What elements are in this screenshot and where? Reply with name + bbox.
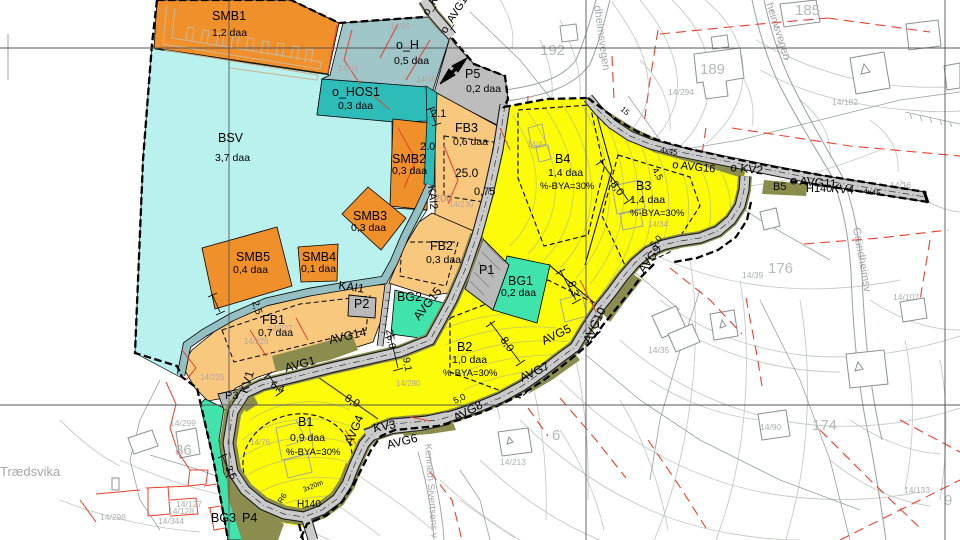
svg-text:P2: P2 [354,297,369,311]
svg-text:BSV: BSV [218,131,244,145]
svg-text:Trædsvika: Trædsvika [0,464,61,479]
svg-text:o_H: o_H [396,38,419,52]
svg-text:185: 185 [795,2,820,19]
svg-text:KV4: KV4 [831,181,855,197]
svg-text:14/34: 14/34 [648,220,669,229]
svg-text:SMB4: SMB4 [302,250,336,264]
svg-text:FB3: FB3 [455,121,478,135]
svg-text:14/90: 14/90 [760,422,782,432]
svg-text:176: 176 [768,260,793,277]
svg-text:B1: B1 [298,415,313,429]
svg-text:B5: B5 [773,181,786,193]
svg-text:14/213: 14/213 [500,457,526,467]
svg-text:14/298: 14/298 [100,512,126,522]
svg-text:14/182: 14/182 [832,97,858,107]
svg-text:P4: P4 [242,511,257,525]
svg-text:174: 174 [812,417,837,434]
svg-text:0,7 daa: 0,7 daa [258,327,293,339]
svg-text:14/39: 14/39 [742,270,764,280]
svg-text:%-BYA=30%: %-BYA=30% [630,208,685,219]
svg-text:4x45: 4x45 [863,187,882,198]
svg-text:H140: H140 [297,499,321,510]
svg-text:B4: B4 [555,152,570,166]
svg-text:2.1: 2.1 [431,108,446,120]
svg-text:14/133: 14/133 [904,485,930,495]
svg-text:14/299: 14/299 [170,418,196,428]
svg-text:14/128: 14/128 [168,506,194,516]
svg-text:189: 189 [700,61,725,78]
svg-text:14/16: 14/16 [390,22,411,31]
svg-text:SMB2: SMB2 [392,152,426,166]
svg-text:14/76: 14/76 [250,438,271,447]
svg-text:2.0: 2.0 [420,141,435,153]
svg-text:0,1 daa: 0,1 daa [301,263,336,275]
svg-text:3,7 daa: 3,7 daa [215,152,250,164]
svg-text:14/107: 14/107 [893,292,919,302]
svg-text:KAI2: KAI2 [425,185,439,210]
svg-text:0,3 daa: 0,3 daa [392,165,427,177]
svg-text:6: 6 [552,427,560,444]
svg-text:14/64: 14/64 [338,64,359,73]
svg-text:14/344: 14/344 [158,516,184,526]
svg-text:1,4 daa: 1,4 daa [548,167,583,179]
svg-text:0,4 daa: 0,4 daa [233,264,268,276]
svg-text:0,6 daa: 0,6 daa [453,136,488,148]
svg-text:P1: P1 [479,263,494,277]
svg-text:0,2 daa: 0,2 daa [466,83,501,95]
svg-text:SMB3: SMB3 [353,209,387,223]
svg-text:SMB5: SMB5 [236,250,270,264]
svg-text:P3: P3 [225,390,238,402]
svg-text:FB2: FB2 [430,239,453,253]
svg-text:0,75: 0,75 [474,186,495,198]
svg-text:0,5 daa: 0,5 daa [394,55,429,67]
svg-text:BG2: BG2 [397,290,422,304]
svg-text:%-BYA=30%: %-BYA=30% [286,447,341,458]
svg-text:1,0 daa: 1,0 daa [452,354,487,366]
svg-text:1,2 daa: 1,2 daa [212,27,247,39]
svg-text:BG3: BG3 [211,511,236,525]
svg-text:0,2 daa: 0,2 daa [501,287,536,299]
svg-text:0,9 daa: 0,9 daa [290,432,325,444]
svg-text:14/35: 14/35 [648,345,670,355]
svg-text:B2: B2 [457,340,472,354]
svg-text:SMB1: SMB1 [212,9,246,23]
svg-text:86: 86 [175,442,192,459]
svg-text:BG1: BG1 [508,274,533,288]
svg-text:o_HOS1: o_HOS1 [332,85,380,99]
svg-text:14/4: 14/4 [527,140,543,149]
svg-text:192: 192 [540,42,565,59]
svg-text:14/294: 14/294 [668,87,694,97]
svg-text:14/230: 14/230 [449,200,474,209]
svg-text:P5: P5 [465,67,480,81]
svg-text:%-BYA=30%: %-BYA=30% [540,181,595,192]
svg-text:14/280: 14/280 [396,379,421,388]
svg-text:B3: B3 [636,179,651,193]
svg-text:14/225: 14/225 [200,373,225,382]
svg-text:%-BYA=30%: %-BYA=30% [443,368,498,379]
svg-text:0,3 daa: 0,3 daa [426,254,461,266]
svg-text:0,3 daa: 0,3 daa [351,222,386,234]
svg-text:H140: H140 [806,183,832,195]
svg-text:25.0: 25.0 [455,166,479,180]
svg-text:1,4 daa: 1,4 daa [630,194,665,206]
svg-text:FB1: FB1 [262,313,285,327]
svg-text:14/45: 14/45 [416,75,437,84]
svg-text:0,3 daa: 0,3 daa [338,100,373,112]
